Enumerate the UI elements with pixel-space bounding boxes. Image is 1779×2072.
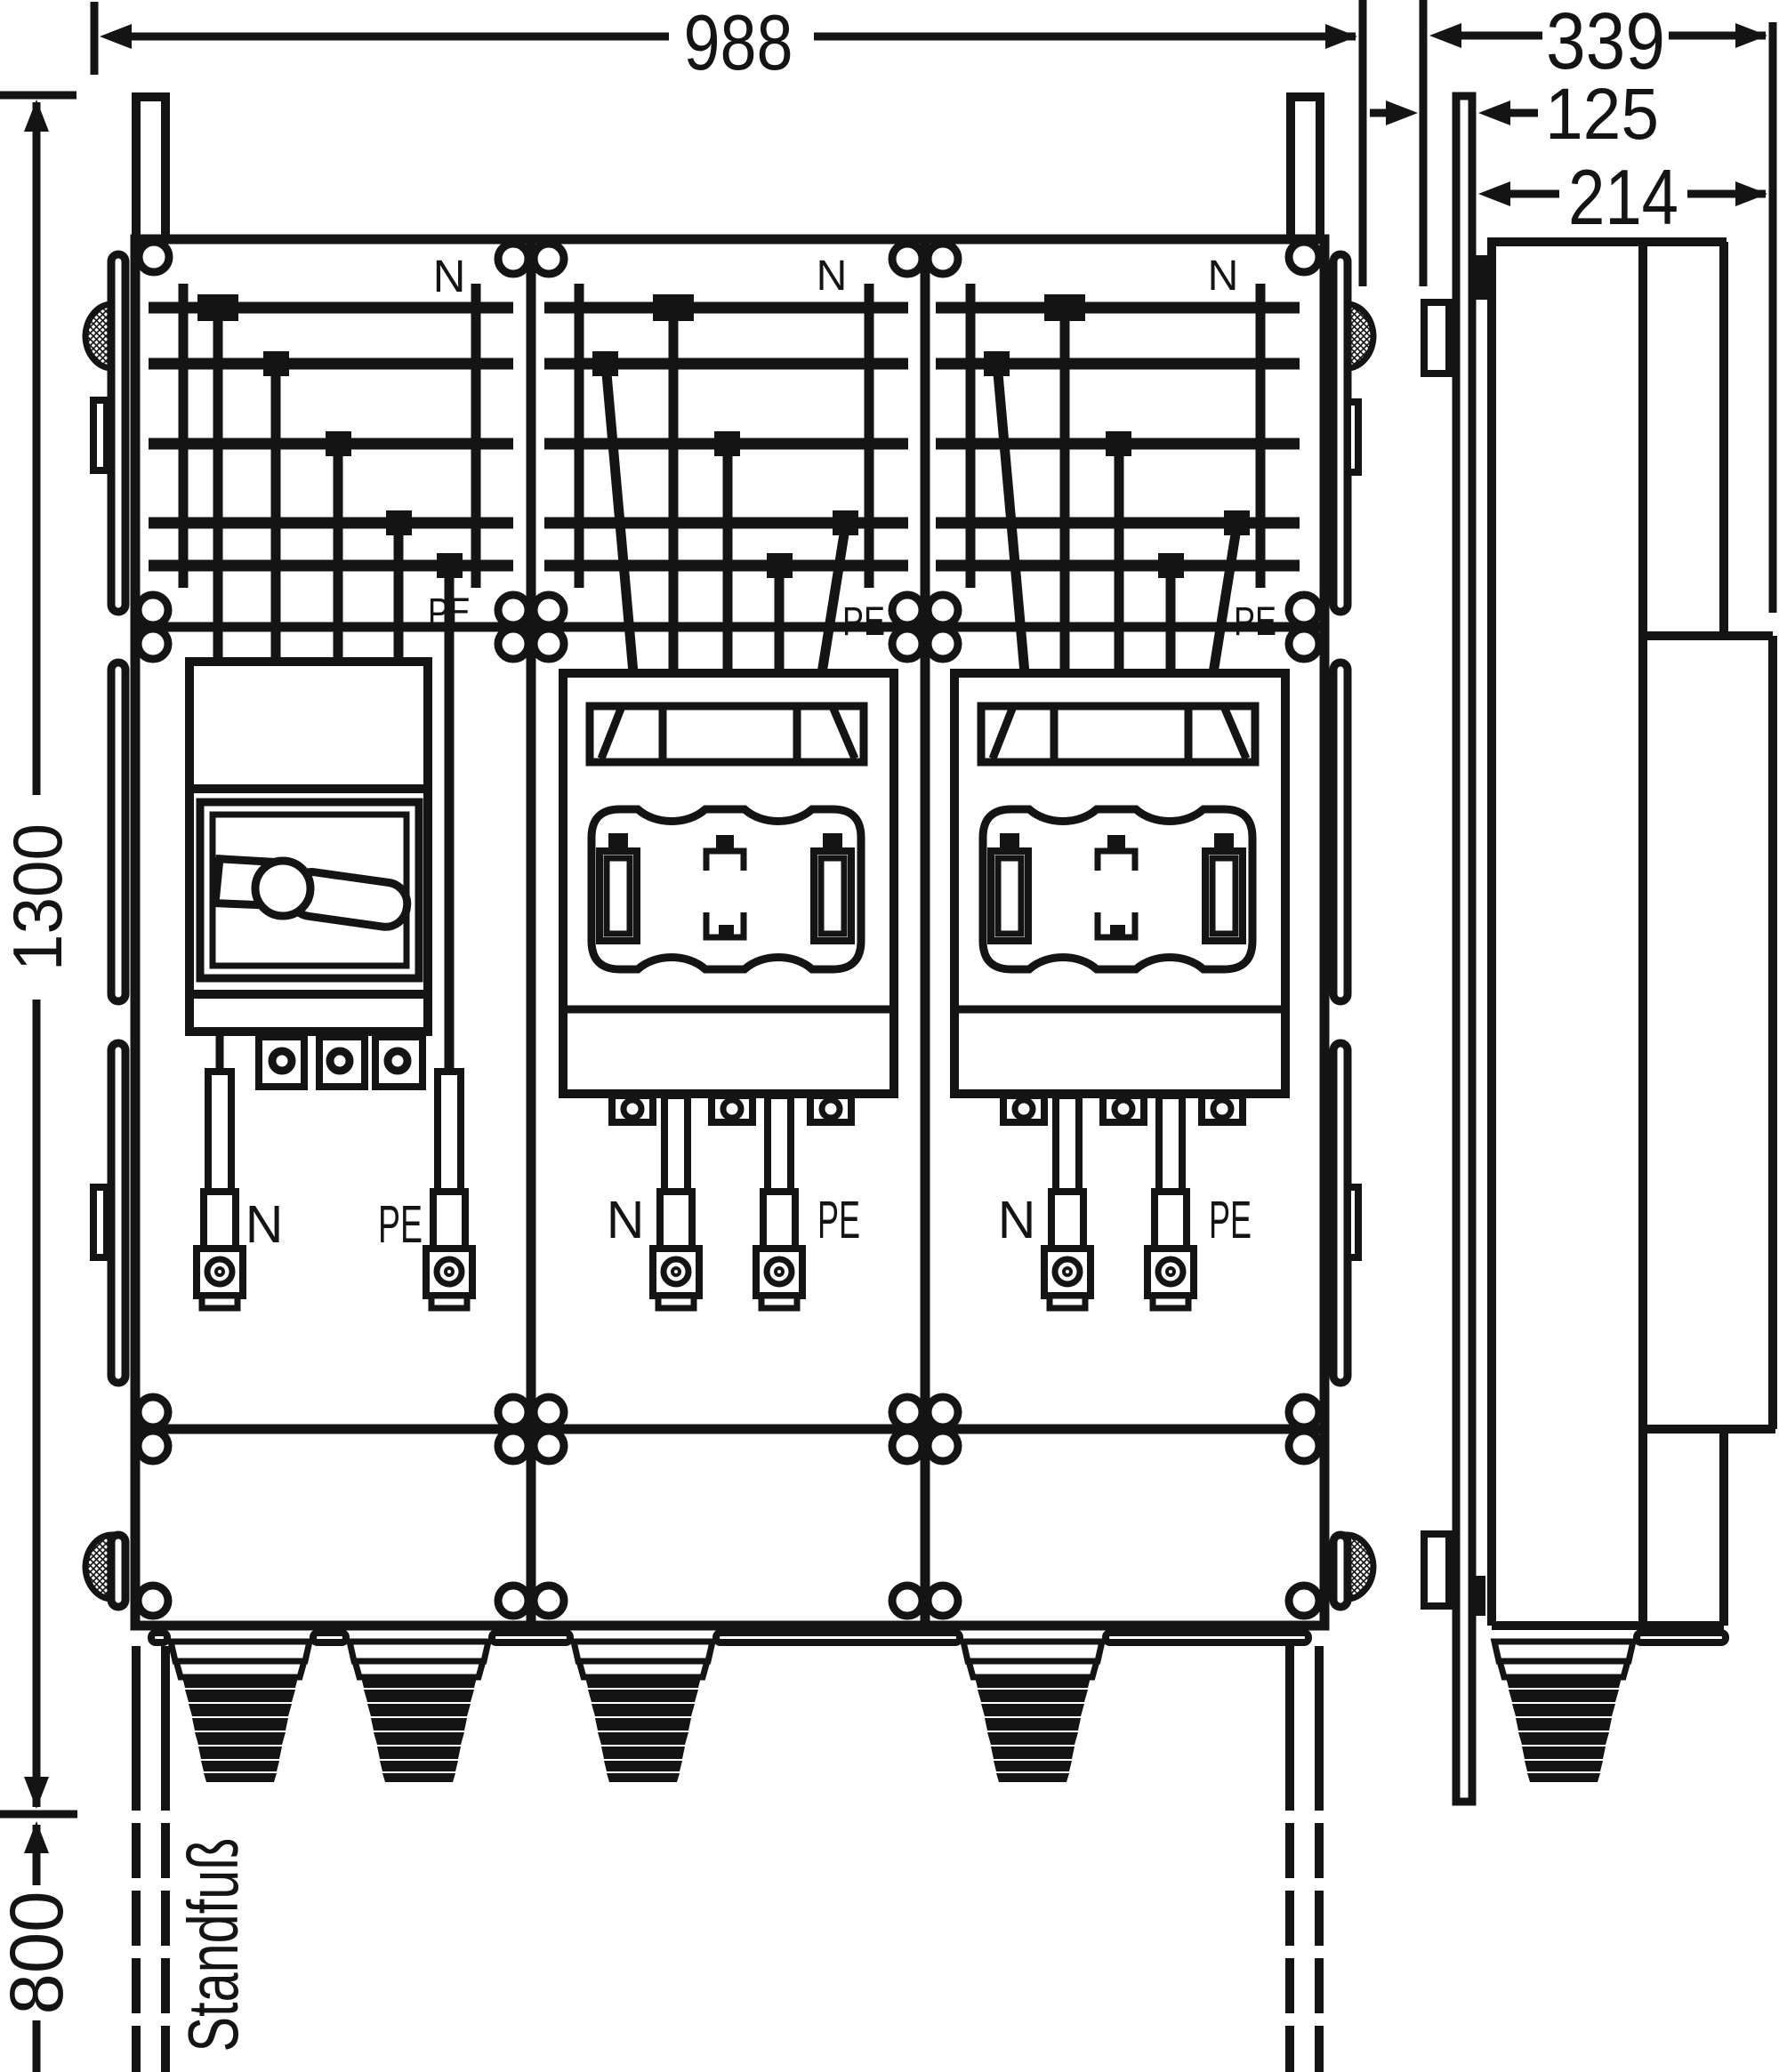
- svg-text:PE: PE: [817, 1191, 860, 1249]
- svg-text:N: N: [433, 251, 466, 301]
- svg-text:988: 988: [684, 0, 793, 86]
- svg-text:125: 125: [1545, 74, 1659, 155]
- svg-text:Standfuß: Standfuß: [173, 1838, 253, 2052]
- svg-text:214: 214: [1568, 153, 1678, 241]
- svg-text:800: 800: [0, 1891, 78, 2015]
- svg-text:N: N: [817, 253, 848, 300]
- svg-text:PE: PE: [428, 590, 471, 635]
- svg-text:1300: 1300: [0, 823, 76, 971]
- svg-text:PE: PE: [378, 1195, 423, 1254]
- svg-text:N: N: [246, 1195, 284, 1254]
- svg-text:N: N: [607, 1191, 645, 1249]
- svg-text:PE: PE: [842, 598, 885, 644]
